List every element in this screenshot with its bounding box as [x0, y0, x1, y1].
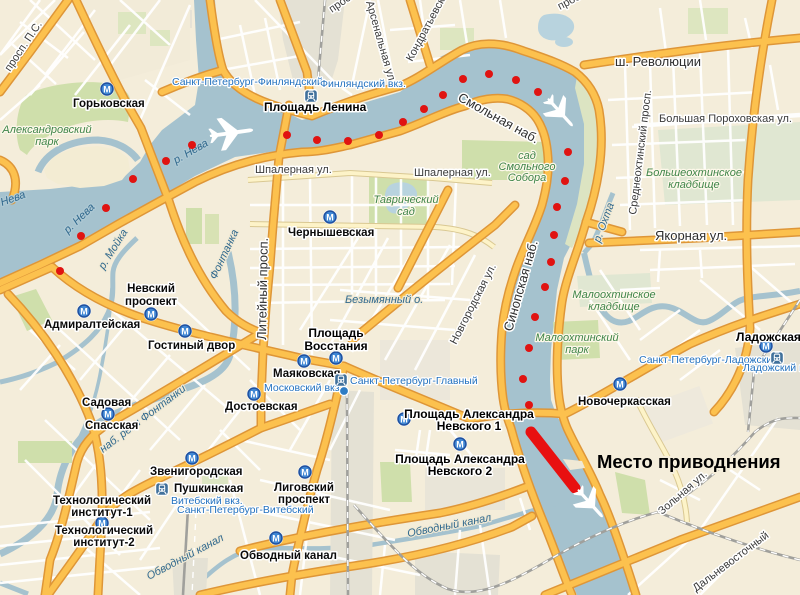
svg-text:Звенигородская: Звенигородская	[150, 466, 243, 478]
svg-text:Обводный канал: Обводный канал	[240, 550, 337, 562]
svg-text:Маяковская: Маяковская	[273, 368, 341, 380]
svg-text:Адмиралтейская: Адмиралтейская	[44, 319, 140, 331]
svg-text:Литейный просп.: Литейный просп.	[254, 238, 271, 340]
svg-text:Место приводнения: Место приводнения	[597, 451, 781, 472]
svg-text:Пушкинская: Пушкинская	[174, 483, 243, 495]
svg-text:Санкт-Петербург-Главный: Санкт-Петербург-Главный	[350, 375, 478, 387]
svg-text:Гостиный двор: Гостиный двор	[148, 340, 235, 352]
svg-text:Безымянный о.: Безымянный о.	[345, 294, 423, 306]
svg-text:Большая Пороховская ул.: Большая Пороховская ул.	[659, 113, 792, 125]
svg-text:Ладожская: Ладожская	[736, 330, 800, 344]
svg-text:Шпалерная ул.: Шпалерная ул.	[414, 167, 491, 179]
svg-text:ПлощадьВосстания: ПлощадьВосстания	[304, 326, 367, 353]
svg-text:Московский вкз.: Московский вкз.	[264, 382, 342, 394]
svg-text:Спасская: Спасская	[85, 420, 138, 432]
svg-text:Санкт-Петербург-Финляндский: Санкт-Петербург-Финляндский	[172, 76, 323, 88]
svg-text:Горьковская: Горьковская	[73, 98, 145, 110]
svg-text:Шпалерная ул.: Шпалерная ул.	[255, 164, 332, 176]
svg-text:Якорная ул.: Якорная ул.	[655, 228, 727, 243]
svg-text:ш. Революции: ш. Революции	[615, 54, 701, 69]
svg-text:Площадь Ленина: Площадь Ленина	[264, 100, 367, 114]
svg-text:Садовая: Садовая	[82, 397, 131, 409]
svg-text:Новочеркасская: Новочеркасская	[578, 396, 671, 408]
svg-text:Невскийпроспект: Невскийпроспект	[125, 283, 177, 308]
svg-text:Достоевская: Достоевская	[225, 401, 298, 413]
svg-text:Финляндский вкз.: Финляндский вкз.	[320, 78, 406, 90]
svg-text:Лиговскийпроспект: Лиговскийпроспект	[274, 482, 334, 506]
svg-text:Чернышевская: Чернышевская	[288, 227, 374, 239]
